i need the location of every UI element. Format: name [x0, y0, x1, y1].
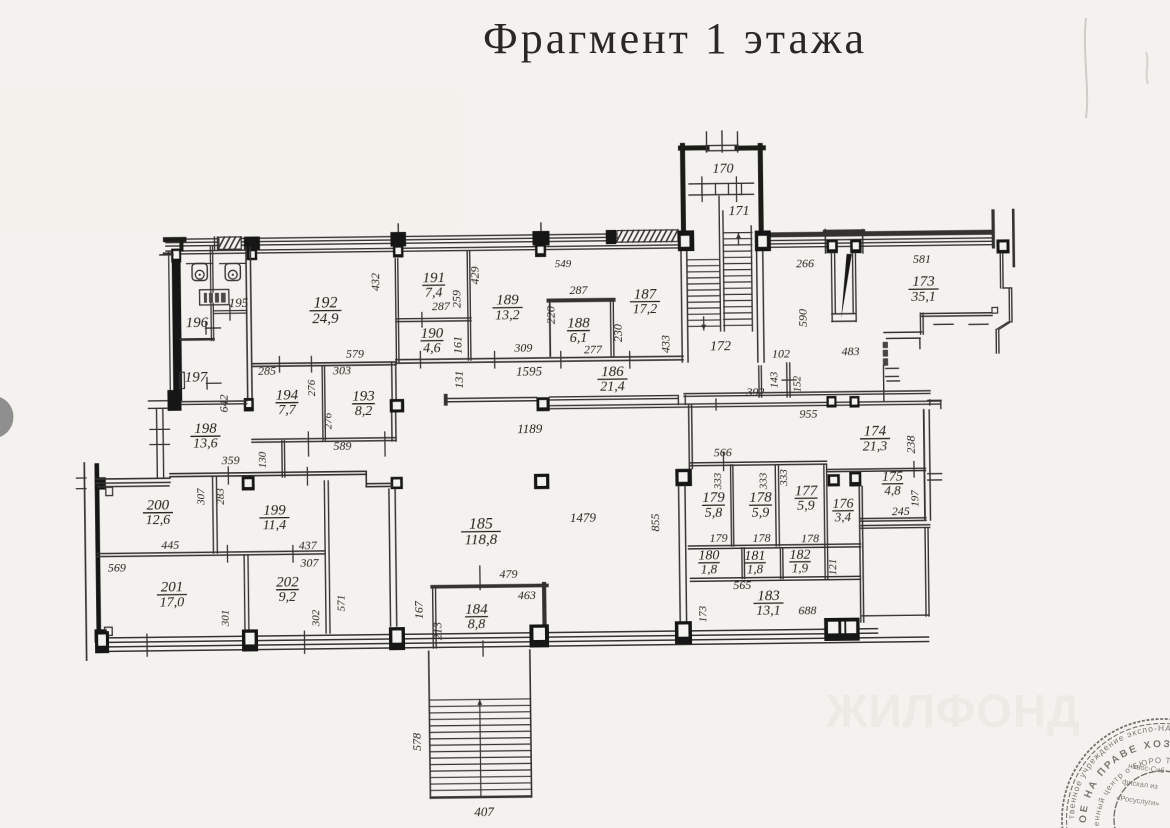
svg-text:230: 230	[611, 324, 625, 342]
svg-text:245: 245	[892, 504, 910, 518]
svg-text:333: 333	[778, 469, 790, 487]
svg-text:479: 479	[499, 567, 517, 581]
svg-text:170: 170	[712, 161, 733, 176]
svg-text:287: 287	[432, 299, 451, 313]
svg-text:1595: 1595	[516, 363, 543, 378]
svg-text:174: 174	[864, 423, 887, 439]
svg-text:171: 171	[728, 204, 749, 219]
svg-text:287: 287	[569, 283, 588, 297]
svg-text:Фрагмент 1 этажа: Фрагмент 1 этажа	[483, 14, 867, 63]
svg-text:1,8: 1,8	[747, 561, 764, 576]
svg-text:283: 283	[215, 488, 227, 505]
svg-text:307: 307	[195, 488, 207, 506]
svg-text:191: 191	[422, 270, 445, 286]
svg-text:259: 259	[449, 290, 463, 308]
svg-text:302: 302	[310, 609, 322, 627]
svg-text:1189: 1189	[517, 421, 543, 436]
svg-text:193: 193	[352, 388, 375, 404]
svg-text:578: 578	[410, 733, 424, 751]
svg-text:198: 198	[194, 421, 217, 437]
svg-text:4,8: 4,8	[884, 482, 901, 497]
svg-text:429: 429	[467, 266, 481, 284]
svg-text:432: 432	[368, 273, 382, 291]
svg-text:571: 571	[335, 595, 347, 612]
svg-text:184: 184	[465, 601, 488, 617]
svg-text:12,6: 12,6	[146, 513, 171, 528]
svg-text:185: 185	[469, 515, 493, 532]
svg-text:688: 688	[798, 603, 816, 617]
svg-text:579: 579	[346, 346, 364, 360]
svg-text:589: 589	[333, 439, 351, 453]
svg-text:238: 238	[904, 435, 918, 453]
svg-text:285: 285	[258, 363, 276, 377]
svg-text:220: 220	[544, 306, 558, 324]
svg-text:277: 277	[584, 342, 603, 356]
svg-text:581: 581	[913, 252, 931, 266]
svg-text:183: 183	[757, 588, 780, 604]
svg-text:4,6: 4,6	[423, 341, 441, 356]
svg-text:161: 161	[450, 336, 464, 354]
svg-text:188: 188	[567, 315, 590, 331]
svg-text:333: 333	[757, 472, 769, 490]
svg-text:143: 143	[769, 371, 781, 388]
svg-text:433: 433	[658, 335, 672, 353]
svg-text:118,8: 118,8	[465, 532, 498, 548]
svg-text:309: 309	[513, 340, 532, 354]
svg-text:13,6: 13,6	[193, 437, 218, 452]
svg-text:190: 190	[421, 325, 444, 341]
svg-text:303: 303	[332, 363, 351, 377]
svg-text:5,9: 5,9	[752, 506, 770, 521]
svg-text:178: 178	[749, 490, 772, 506]
svg-text:189: 189	[496, 292, 519, 308]
svg-text:179: 179	[709, 531, 727, 545]
svg-text:187: 187	[634, 286, 658, 302]
svg-text:201: 201	[161, 579, 184, 595]
svg-text:483: 483	[841, 344, 859, 358]
svg-text:855: 855	[648, 513, 662, 531]
svg-text:24,9: 24,9	[312, 311, 339, 327]
svg-text:955: 955	[799, 406, 817, 420]
svg-text:8,8: 8,8	[468, 617, 486, 632]
svg-text:121: 121	[827, 559, 839, 576]
svg-text:186: 186	[601, 364, 624, 380]
svg-text:266: 266	[796, 256, 814, 270]
svg-text:21,4: 21,4	[600, 379, 625, 394]
svg-text:7,7: 7,7	[278, 403, 297, 418]
svg-text:17,0: 17,0	[160, 595, 185, 610]
svg-text:407: 407	[474, 804, 494, 819]
svg-text:21,3: 21,3	[863, 439, 888, 454]
svg-text:5,9: 5,9	[797, 499, 815, 514]
svg-text:178: 178	[752, 531, 770, 545]
svg-text:9,2: 9,2	[279, 590, 297, 605]
svg-text:333: 333	[712, 472, 724, 490]
svg-text:172: 172	[710, 339, 731, 354]
svg-text:167: 167	[411, 600, 425, 619]
svg-text:200: 200	[147, 497, 170, 513]
svg-text:35,1: 35,1	[910, 290, 936, 305]
svg-text:197: 197	[909, 490, 921, 507]
svg-text:179: 179	[702, 490, 725, 506]
svg-text:276: 276	[306, 379, 318, 396]
svg-text:192: 192	[313, 294, 337, 311]
svg-text:173: 173	[912, 274, 935, 290]
svg-text:307: 307	[299, 555, 319, 569]
svg-text:17,2: 17,2	[633, 302, 658, 317]
svg-text:ЖИЛФОНД: ЖИЛФОНД	[825, 685, 1081, 737]
svg-text:199: 199	[263, 502, 286, 518]
svg-text:13,2: 13,2	[495, 308, 520, 323]
svg-text:569: 569	[108, 560, 126, 574]
svg-text:3,4: 3,4	[834, 509, 852, 524]
svg-text:590: 590	[796, 309, 810, 327]
svg-text:152: 152	[792, 375, 804, 392]
svg-text:549: 549	[555, 258, 572, 270]
svg-text:445: 445	[161, 538, 179, 552]
svg-text:194: 194	[276, 387, 299, 403]
svg-text:1,8: 1,8	[701, 561, 718, 576]
svg-text:195: 195	[229, 295, 249, 310]
svg-text:11,4: 11,4	[263, 518, 287, 533]
svg-text:276: 276	[322, 412, 334, 429]
svg-text:197: 197	[185, 369, 209, 385]
svg-text:359: 359	[220, 453, 239, 467]
svg-text:102: 102	[772, 346, 790, 360]
svg-text:13,1: 13,1	[756, 604, 781, 619]
svg-text:213: 213	[430, 622, 444, 640]
svg-text:437: 437	[299, 538, 318, 552]
svg-text:1,9: 1,9	[792, 560, 809, 575]
svg-text:8,2: 8,2	[355, 404, 373, 419]
svg-text:177: 177	[795, 483, 819, 499]
svg-text:5,8: 5,8	[705, 506, 723, 521]
svg-text:1479: 1479	[570, 510, 597, 525]
svg-text:131: 131	[452, 371, 466, 389]
svg-text:463: 463	[518, 588, 536, 602]
svg-text:173: 173	[697, 605, 709, 622]
svg-text:565: 565	[733, 578, 751, 592]
svg-text:130: 130	[257, 451, 269, 468]
svg-text:301: 301	[220, 610, 232, 628]
svg-text:178: 178	[801, 531, 819, 545]
svg-text:202: 202	[276, 574, 299, 590]
